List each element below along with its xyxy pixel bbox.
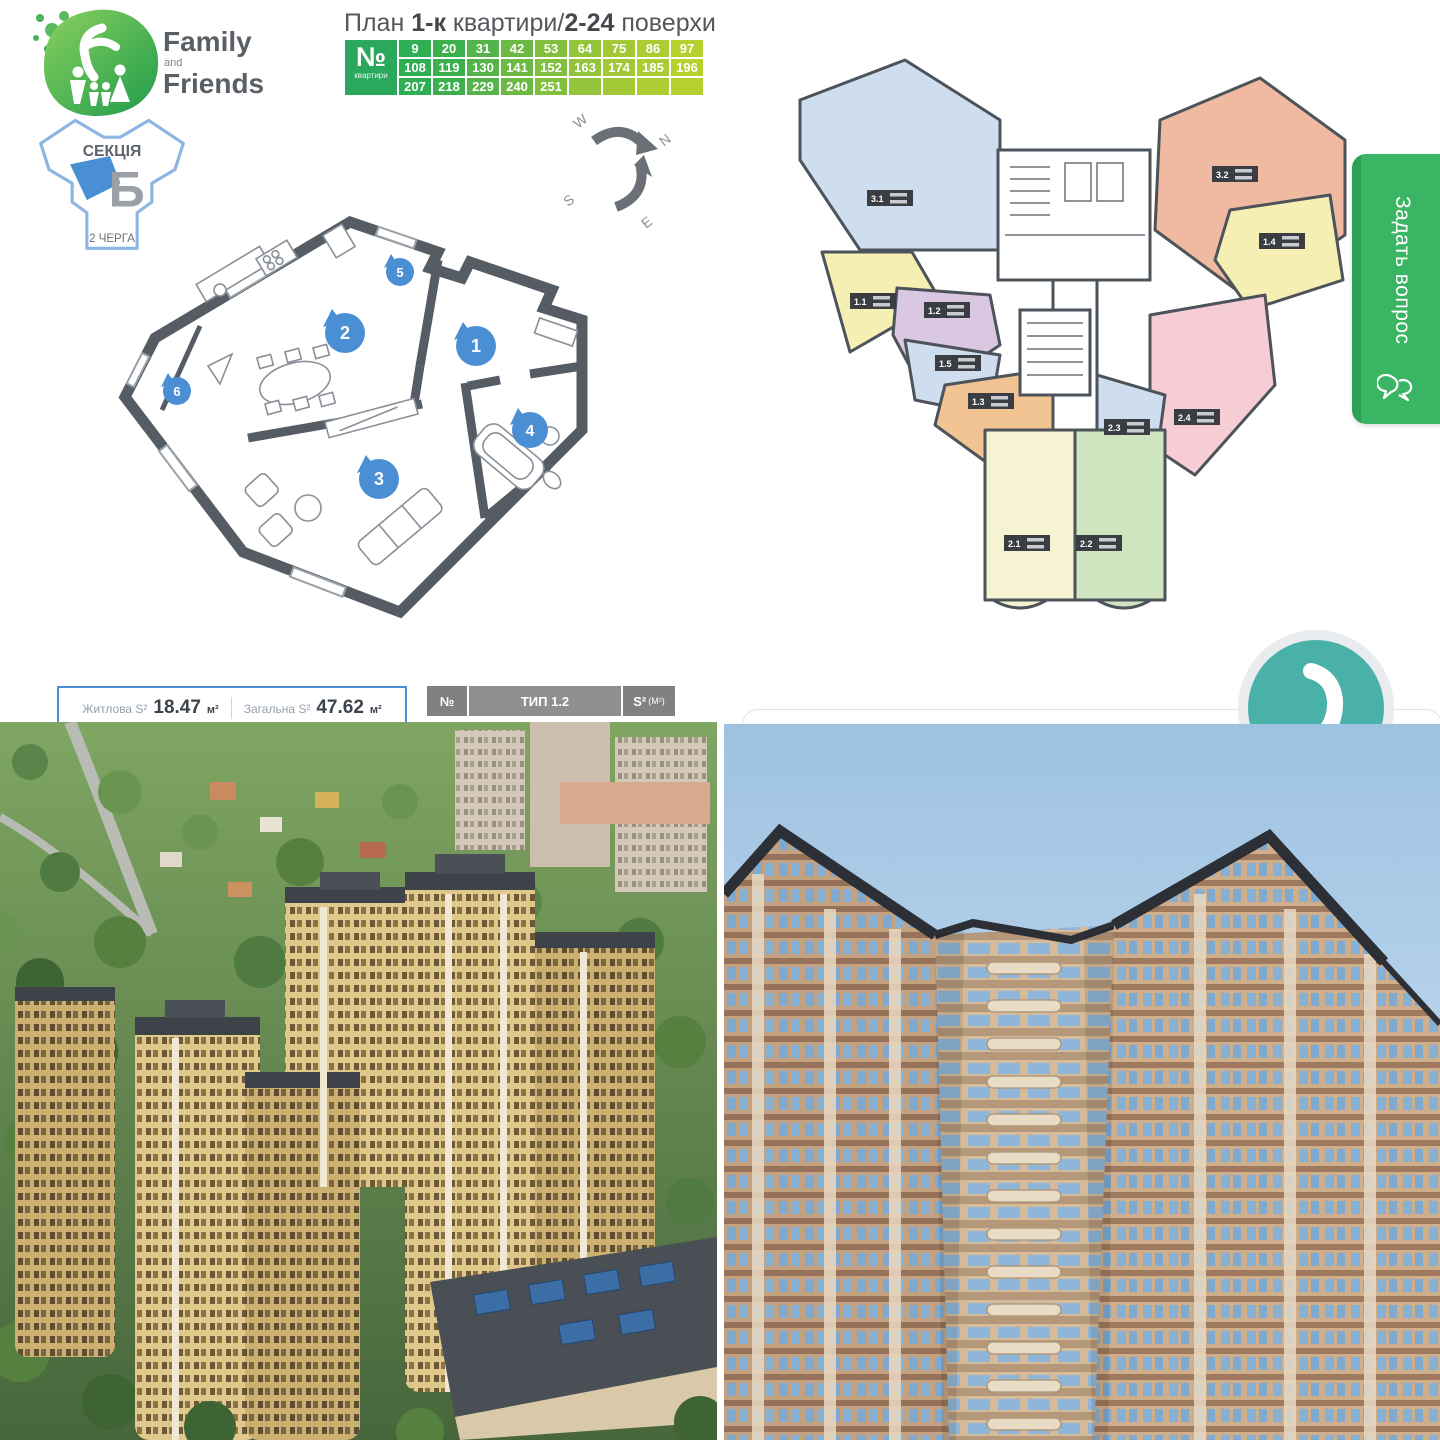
apt-cell: 185 [637, 59, 669, 76]
unit-2-4 [1150, 295, 1275, 475]
apt-cell: 31 [467, 40, 499, 57]
brand-line-friends: Friends [163, 70, 264, 99]
type-col-type: ТИП 1.2 [469, 686, 621, 716]
apt-cell [569, 78, 601, 95]
apartment-floorplan: 1 2 3 4 5 6 [100, 198, 620, 658]
apt-cell [671, 78, 703, 95]
apartment-numbers-table: № квартири 9 20 31 42 53 64 75 86 97 108… [345, 40, 703, 95]
corner-sub: квартири [345, 71, 397, 80]
unit-badge-label: 1.3 [972, 397, 985, 407]
apt-cell: 9 [399, 40, 431, 57]
brand-line-family: Family [163, 28, 264, 57]
title-part: План [344, 9, 411, 37]
apt-cell: 20 [433, 40, 465, 57]
title-bold-rooms: 1-к [411, 9, 446, 37]
chat-bubbles-icon [1377, 373, 1413, 405]
unit-badge-label: 2.2 [1080, 539, 1093, 549]
unit-badge-label: 2.1 [1008, 539, 1021, 549]
ask-question-button[interactable]: Задать вопрос [1352, 154, 1440, 424]
svg-text:4: 4 [526, 423, 535, 440]
aerial-render-photo [0, 722, 717, 1440]
compass-w: W [570, 110, 591, 131]
apt-cell [637, 78, 669, 95]
unit-badge-label: 1.1 [854, 297, 867, 307]
apt-cell: 64 [569, 40, 601, 57]
svg-text:1: 1 [471, 336, 481, 356]
svg-text:5: 5 [396, 265, 403, 280]
apt-cell: 53 [535, 40, 567, 57]
svg-text:3: 3 [374, 469, 384, 489]
type-col-no: № [427, 686, 467, 716]
apt-cell: 229 [467, 78, 499, 95]
apt-cell: 119 [433, 59, 465, 76]
unit-badge-label: 2.4 [1178, 413, 1191, 423]
living-area-value: 18.47 [153, 697, 201, 719]
living-area-label: Житлова S² [82, 702, 147, 716]
living-area: Житлова S² 18.47 м² [70, 697, 230, 719]
total-area: Загальна S² 47.62 м² [231, 697, 394, 719]
family-friends-logo-icon [22, 6, 162, 118]
ask-question-label: Задать вопрос [1390, 178, 1414, 363]
type-area-unit: (М²) [648, 696, 665, 706]
unit-2-2 [1075, 430, 1165, 600]
apt-cell: 75 [603, 40, 635, 57]
apt-cell [603, 78, 635, 95]
unit-1-4 [1215, 195, 1343, 310]
unit-3-1 [800, 60, 1000, 250]
title-part: квартири [446, 9, 557, 37]
apt-cell: 240 [501, 78, 533, 95]
apartment-grid: 9 20 31 42 53 64 75 86 97 108 119 130 14… [399, 40, 703, 95]
type-header-bar: № ТИП 1.2 S² (М²) [427, 686, 675, 716]
compass-e: E [638, 213, 655, 231]
unit-badge-label: 1.4 [1263, 237, 1276, 247]
type-col-area: S² (М²) [623, 686, 675, 716]
apt-cell: 163 [569, 59, 601, 76]
total-area-value: 47.62 [316, 697, 364, 719]
page: Family and Friends План 1-к квартири/2-2… [0, 0, 1440, 1440]
apartment-table-corner: № квартири [345, 40, 397, 95]
unit-badge-label: 3.1 [871, 194, 884, 204]
apt-cell: 141 [501, 59, 533, 76]
unit-badge-label: 1.5 [939, 359, 952, 369]
type-area-s: S² [633, 694, 646, 709]
apt-cell: 152 [535, 59, 567, 76]
apt-cell: 130 [467, 59, 499, 76]
title-bold-floors: 2-24 [564, 9, 614, 37]
total-area-label: Загальна S² [244, 702, 311, 716]
living-area-unit: м² [207, 704, 219, 716]
brand-text: Family and Friends [163, 28, 264, 98]
section-label: СЕКЦІЯ [83, 143, 142, 160]
svg-text:2: 2 [340, 323, 350, 343]
unit-badge-label: 2.3 [1108, 423, 1121, 433]
unit-badge-label: 3.2 [1216, 170, 1229, 180]
apt-cell: 174 [603, 59, 635, 76]
apt-cell: 97 [671, 40, 703, 57]
apt-cell: 218 [433, 78, 465, 95]
unit-badge-label: 1.2 [928, 306, 941, 316]
page-title: План 1-к квартири/2-24 поверхи [344, 9, 716, 38]
corner-no: № [345, 40, 397, 74]
apt-cell: 196 [671, 59, 703, 76]
apt-cell: 42 [501, 40, 533, 57]
apt-cell: 108 [399, 59, 431, 76]
svg-text:6: 6 [173, 384, 180, 399]
total-area-unit: м² [370, 704, 382, 716]
apt-cell: 207 [399, 78, 431, 95]
compass-n: N [656, 131, 674, 150]
building-floorplan: 3.1 1.1 1.2 1.5 1.3 3.2 1.4 2.4 2.3 2.1 … [765, 55, 1350, 610]
apt-cell: 251 [535, 78, 567, 95]
apt-cell: 86 [637, 40, 669, 57]
title-part: поверхи [614, 9, 715, 37]
unit-2-1 [985, 430, 1075, 600]
building-photo [724, 724, 1440, 1440]
